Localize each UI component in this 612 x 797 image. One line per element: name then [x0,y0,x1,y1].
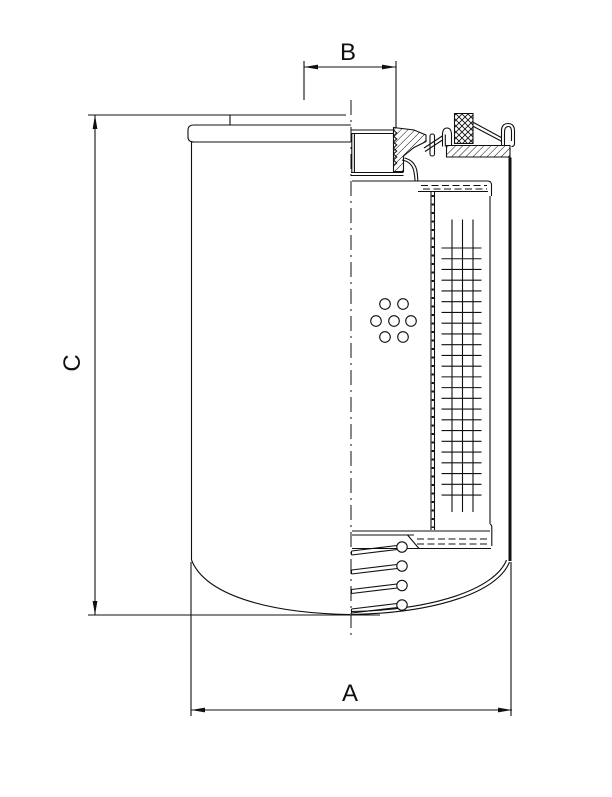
drawing-page: B C A [0,0,612,792]
spring-wire-section [397,600,407,610]
dim-a-label: A [342,680,358,707]
spring-wire-section [397,561,407,571]
spring-wire-section [397,580,407,590]
dim-b-label: B [340,39,356,66]
technical-drawing-svg: B C A [0,0,612,792]
bypass-hole [398,332,409,343]
gasket [455,114,474,144]
bypass-hole [380,332,391,343]
bypass-hole [371,316,382,327]
bypass-hole [380,299,391,310]
drawing-background [0,0,612,792]
retainer-plate [447,146,511,158]
dim-c-label: C [59,354,86,371]
bypass-hole [406,316,417,327]
seal-sleeve [430,134,435,156]
seal-loop [443,128,452,147]
bypass-hole [389,316,400,327]
bypass-hole [398,299,409,310]
spring-wire-section [397,542,407,552]
